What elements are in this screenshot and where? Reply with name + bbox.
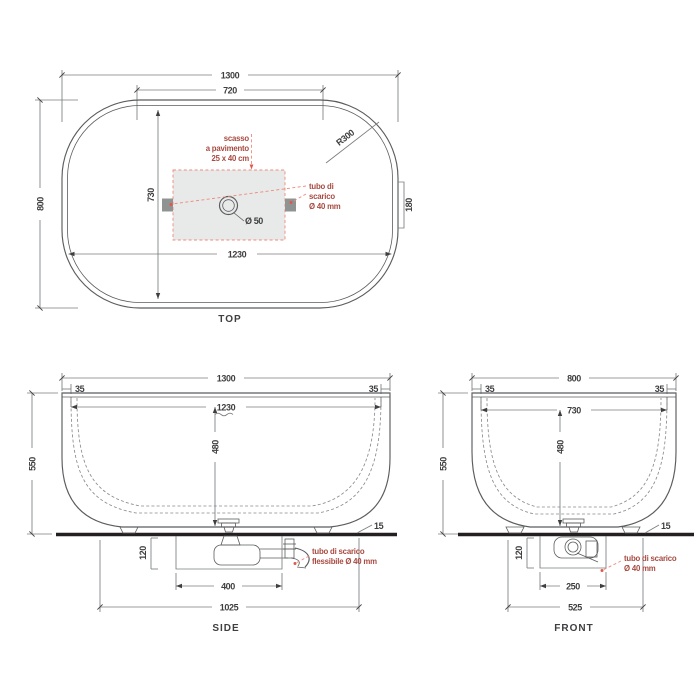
side-dim-height: 550 (26, 390, 58, 536)
front-dim-recess-length: 250 (540, 572, 606, 592)
top-dim-side-recess: 180 (398, 182, 414, 228)
view-title-side: SIDE (212, 623, 239, 634)
dim-label: R300 (334, 127, 356, 147)
floor-recess-side (176, 536, 282, 569)
floor-recess-note: scasso a pavimento 25 x 40 cm (206, 134, 254, 170)
front-dim-inner-width: 730 (481, 403, 667, 416)
dim-label: 1230 (217, 403, 236, 413)
bathtub-drawing-svg: 1300 720 800 730 (0, 0, 700, 700)
dim-label: 250 (566, 582, 580, 592)
view-title-front: FRONT (554, 623, 593, 634)
side-dim-base-gap: 15 (357, 521, 384, 533)
front-dim-inner-depth: 480 (554, 410, 567, 526)
top-dim-inner-length: 1230 (69, 247, 392, 260)
side-dim-recess-depth: 120 (138, 538, 158, 569)
drain-plug-side (218, 519, 239, 532)
note-line: tubo di scarico (624, 554, 677, 563)
note-line: Ø 40 mm (309, 202, 341, 211)
corner-radius-callout: R300 (326, 122, 379, 163)
technical-drawing-page: 1300 720 800 730 (0, 0, 700, 700)
drain-pipe-note-front: tubo di scarico Ø 40 mm (601, 554, 677, 573)
front-dim-drain-span: 525 (505, 538, 645, 613)
dim-label: 15 (661, 521, 671, 531)
note-line: tubo di scarico (312, 547, 365, 556)
water-level-symbol (215, 413, 233, 416)
top-dim-overall-depth: 800 (34, 97, 78, 310)
dim-label: 730 (146, 188, 156, 202)
dim-label: 1230 (228, 250, 247, 260)
side-dim-inner-depth: 480 (209, 407, 222, 526)
dim-label: 480 (556, 440, 566, 454)
dim-label: 480 (211, 440, 221, 454)
dim-label: 400 (221, 582, 235, 592)
top-dim-inner-top-width: 720 (134, 84, 325, 120)
note-line: Ø 40 mm (624, 564, 656, 573)
inner-bowl-hidden-line (77, 398, 375, 506)
dim-label: 1025 (220, 603, 239, 613)
side-dim-inner-length: 1230 (71, 400, 381, 416)
dim-label: 720 (223, 86, 237, 96)
tub-side-outline (62, 393, 390, 527)
dim-label: 550 (28, 457, 38, 471)
dim-label: 180 (404, 198, 414, 212)
dim-label: 120 (514, 546, 524, 560)
note-line: 25 x 40 cm (212, 154, 250, 163)
note-line: a pavimento (206, 144, 250, 153)
tub-foot (622, 527, 640, 533)
floor-recess-area (173, 170, 285, 240)
dim-label: 120 (138, 546, 148, 560)
front-dim-height: 550 (437, 390, 468, 536)
front-dim-overall-width: 800 (469, 372, 678, 391)
dim-label: 730 (567, 406, 581, 416)
top-dim-inner-width: 730 (146, 110, 160, 299)
dim-label: 800 (36, 197, 46, 211)
note-line: scarico (309, 192, 335, 201)
dim-label: 1300 (221, 71, 240, 81)
side-dim-overall-width: 1300 (59, 372, 392, 391)
tub-foot (120, 527, 138, 533)
note-line: scasso (224, 134, 250, 143)
dim-label: 525 (568, 603, 582, 613)
side-dim-recess-length: 400 (176, 573, 282, 592)
tub-foot (506, 527, 524, 533)
side-view: 1300 35 35 1230 (26, 372, 397, 634)
drain-trap-front (554, 537, 598, 562)
drain-plug-front (563, 519, 584, 532)
note-line: flessibile Ø 40 mm (312, 557, 377, 566)
dim-label: 15 (374, 521, 384, 531)
drain-diameter-label: Ø 50 (245, 216, 263, 226)
note-line: tubo di (309, 182, 334, 191)
top-view: 1300 720 800 730 (34, 69, 414, 325)
dim-label: 550 (439, 457, 449, 471)
dim-label: 1300 (217, 374, 236, 384)
view-title-top: TOP (218, 314, 241, 325)
front-dim-recess-depth: 120 (514, 538, 534, 568)
tub-foot (314, 527, 332, 533)
drain-hose-note: tubo di scarico flessibile Ø 40 mm (294, 547, 378, 566)
front-view: 800 35 35 730 (437, 372, 694, 634)
front-dim-base-gap: 15 (645, 521, 671, 533)
dim-label: 800 (567, 374, 581, 384)
